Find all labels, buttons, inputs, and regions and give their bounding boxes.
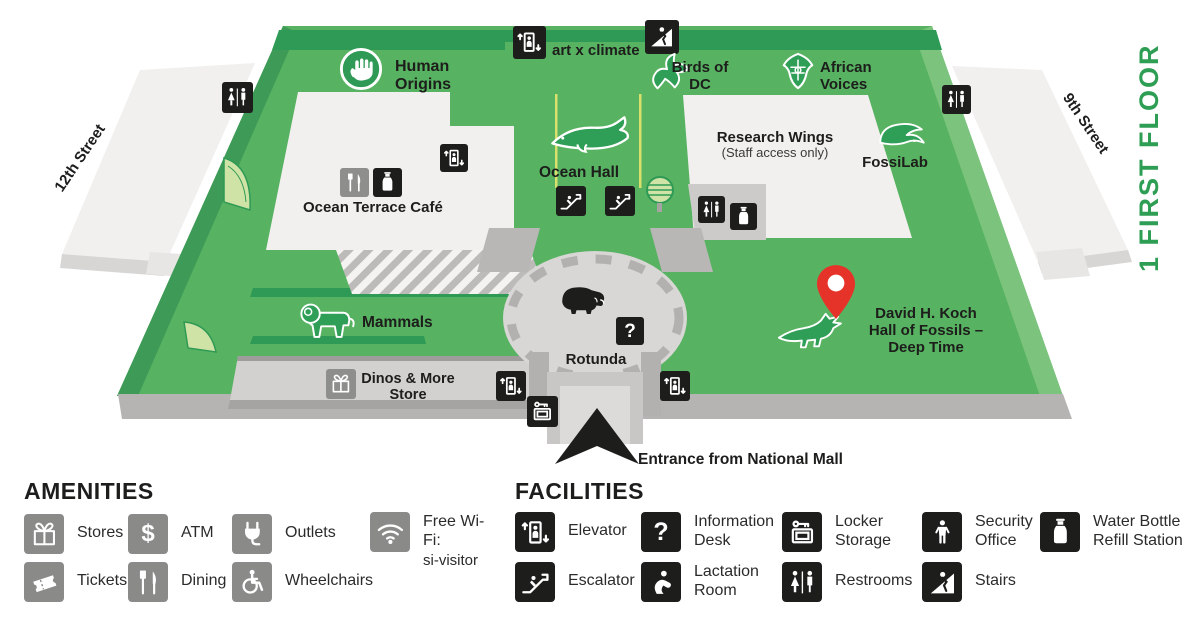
- elevator-icon: [440, 144, 468, 172]
- dining-icon: [340, 168, 369, 197]
- outlets-icon: [232, 514, 272, 554]
- art-x-climate-label: art x climate: [552, 43, 640, 60]
- research-wings-note: (Staff access only): [700, 146, 850, 161]
- legend-item-stairs: Stairs: [922, 562, 1016, 602]
- information-desk-icon: ?: [616, 317, 644, 345]
- lactation-room-label: Lactation Room: [694, 562, 789, 601]
- restrooms-icon: [222, 82, 253, 113]
- wifi-icon: [370, 512, 410, 552]
- water-bottle-refill-icon: [373, 168, 402, 197]
- lion-icon: [298, 299, 358, 342]
- rotunda-label: Rotunda: [556, 352, 636, 369]
- stores-icon: [24, 514, 64, 554]
- stairs-label: Stairs: [975, 562, 1016, 591]
- escalator-label: Escalator: [568, 562, 635, 591]
- dining-label: Dining: [181, 562, 226, 591]
- location-pin-icon: [815, 264, 857, 320]
- water-bottle-refill-icon: [1040, 512, 1080, 552]
- facilities-title: FACILITIES: [515, 478, 644, 505]
- legend-item-stores: Stores: [24, 514, 123, 554]
- lactation-room-icon: [641, 562, 681, 602]
- ocean-hall-label: Ocean Hall: [524, 164, 634, 181]
- elevator-icon: [513, 26, 546, 59]
- wheelchairs-icon: [232, 562, 272, 602]
- elevator-icon: [515, 512, 555, 552]
- atm-icon: $: [128, 514, 168, 554]
- escalator-icon: [605, 186, 635, 216]
- entrance-label: Entrance from National Mall: [638, 451, 843, 468]
- stairs-icon: [645, 20, 679, 54]
- floor-plan-graphic: [0, 0, 1200, 480]
- legend-item-atm: $ ATM: [128, 514, 214, 554]
- water-bottle-refill-icon: [730, 203, 757, 230]
- tickets-icon: [24, 562, 64, 602]
- water-bottle-label: Water Bottle Refill Station: [1093, 512, 1200, 551]
- wheelchairs-label: Wheelchairs: [285, 562, 373, 591]
- elephant-icon: [556, 277, 614, 315]
- legend-item-tickets: Tickets: [24, 562, 127, 602]
- escalator-icon: [515, 562, 555, 602]
- museum-floor-map-page: ? Human Origins art x climate Birds of D…: [0, 0, 1200, 621]
- outlets-label: Outlets: [285, 514, 336, 543]
- whale-icon: [546, 110, 638, 158]
- ocean-terrace-cafe-label: Ocean Terrace Café: [303, 200, 443, 217]
- human-origins-label: Human Origins: [395, 58, 475, 94]
- tickets-label: Tickets: [77, 562, 127, 591]
- legend-item-wheelchairs: Wheelchairs: [232, 562, 373, 602]
- amenities-title: AMENITIES: [24, 478, 154, 505]
- wifi-network-name: si-visitor: [423, 551, 485, 570]
- stores-label: Stores: [77, 514, 123, 543]
- legend-item-dining: Dining: [128, 562, 226, 602]
- elevator-icon: [660, 371, 690, 401]
- birds-of-dc-label: Birds of DC: [668, 60, 732, 94]
- legend-item-locker-storage: Locker Storage: [782, 512, 919, 552]
- legend-item-escalator: Escalator: [515, 562, 635, 602]
- legend-item-security-office: Security Office: [922, 512, 1059, 552]
- african-mask-icon: [779, 51, 817, 93]
- legend-item-restrooms: Restrooms: [782, 562, 912, 602]
- restrooms-label: Restrooms: [835, 562, 912, 591]
- mammals-label: Mammals: [362, 314, 433, 331]
- atm-label: ATM: [181, 514, 214, 543]
- floor-label: 1 FIRST FLOOR: [1134, 16, 1182, 300]
- dining-icon: [128, 562, 168, 602]
- escalator-icon: [556, 186, 586, 216]
- stairs-icon: [922, 562, 962, 602]
- locker-storage-label: Locker Storage: [835, 512, 919, 551]
- legend-item-water-bottle: Water Bottle Refill Station: [1040, 512, 1200, 552]
- fossil-icon: [876, 120, 928, 154]
- legend-item-outlets: Outlets: [232, 514, 336, 554]
- elevator-icon: [496, 371, 526, 401]
- african-voices-label: African Voices: [820, 60, 884, 94]
- restrooms-icon: [698, 196, 725, 223]
- information-desk-icon: ?: [641, 512, 681, 552]
- koch-hall-label: David H. Koch Hall of Fossils – Deep Tim…: [867, 306, 985, 356]
- restrooms-icon: [942, 85, 971, 114]
- human-origins-hand-icon: [339, 47, 383, 91]
- fossilab-label: FossiLab: [855, 155, 935, 172]
- locker-storage-icon: [782, 512, 822, 552]
- locker-storage-icon: [527, 396, 558, 427]
- wifi-label: Free Wi-Fi:: [423, 512, 485, 551]
- legend-item-elevator: Elevator: [515, 512, 627, 552]
- dinos-store-label: Dinos & More Store: [352, 371, 464, 403]
- legend-item-wifi: Free Wi-Fi: si-visitor: [370, 512, 485, 569]
- legend-item-lactation-room: Lactation Room: [641, 562, 789, 602]
- elevator-label: Elevator: [568, 512, 627, 541]
- security-office-icon: [922, 512, 962, 552]
- restrooms-icon: [782, 562, 822, 602]
